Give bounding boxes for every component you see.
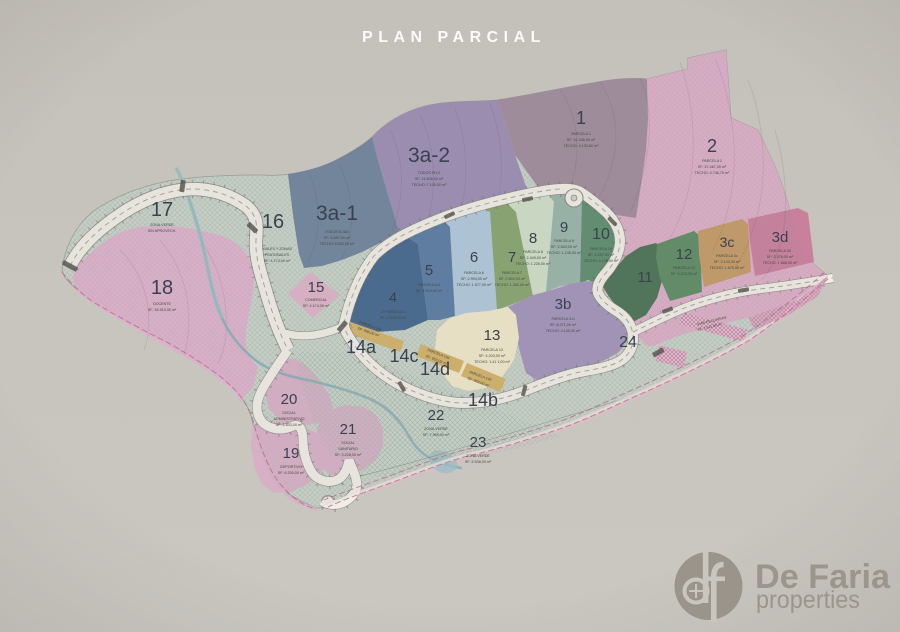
svg-text:properties: properties bbox=[756, 586, 860, 614]
svg-text:PLAN PARCIAL: PLAN PARCIAL bbox=[362, 29, 546, 46]
